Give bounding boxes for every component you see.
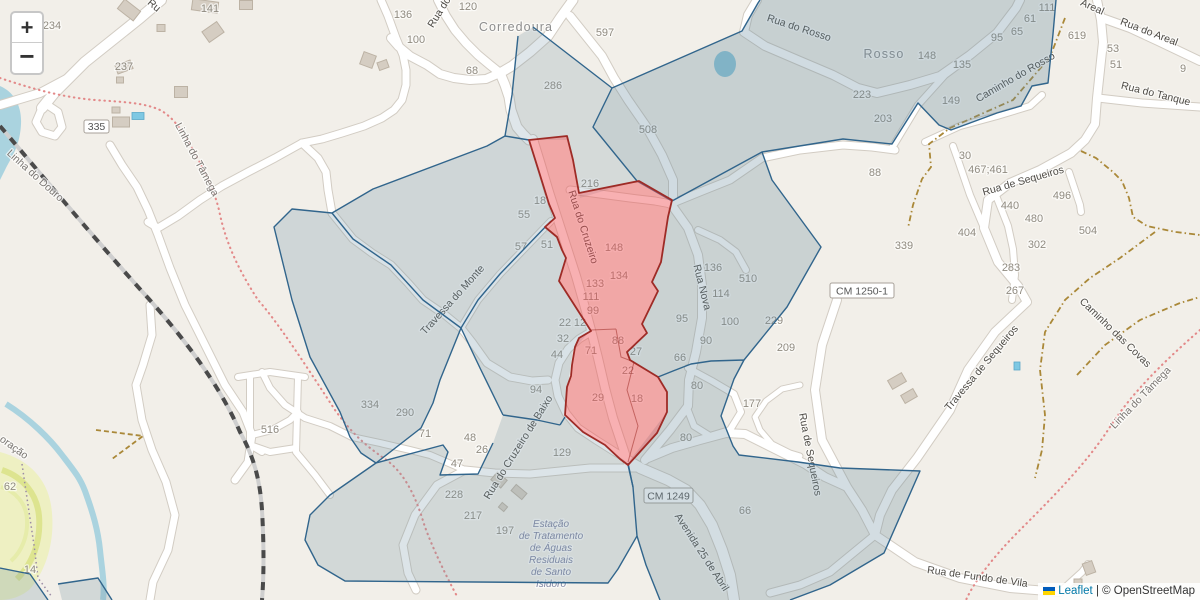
svg-text:209: 209 (777, 342, 795, 354)
svg-text:177: 177 (743, 398, 761, 410)
svg-text:51: 51 (1110, 59, 1122, 71)
svg-text:335: 335 (88, 121, 106, 133)
svg-text:26: 26 (476, 444, 488, 456)
svg-text:504: 504 (1079, 225, 1097, 237)
svg-text:302: 302 (1028, 239, 1046, 251)
svg-text:CM 1250-1: CM 1250-1 (836, 286, 888, 298)
svg-text:267: 267 (1006, 285, 1024, 297)
svg-text:619: 619 (1068, 30, 1086, 42)
svg-text:440: 440 (1001, 200, 1019, 212)
svg-text:234: 234 (43, 20, 61, 32)
svg-text:120: 120 (459, 1, 477, 13)
svg-text:283: 283 (1002, 262, 1020, 274)
svg-text:467;461: 467;461 (968, 164, 1008, 176)
svg-text:339: 339 (895, 240, 913, 252)
svg-text:141: 141 (201, 3, 219, 15)
svg-text:53: 53 (1107, 43, 1119, 55)
svg-text:136: 136 (394, 9, 412, 21)
svg-text:47: 47 (451, 458, 463, 470)
svg-text:597: 597 (596, 27, 614, 39)
svg-text:496: 496 (1053, 190, 1071, 202)
svg-text:30: 30 (959, 150, 971, 162)
svg-text:48: 48 (464, 432, 476, 444)
svg-text:71: 71 (419, 428, 431, 440)
svg-text:62: 62 (4, 481, 16, 493)
svg-text:404: 404 (958, 227, 976, 239)
svg-text:516: 516 (261, 424, 279, 436)
svg-text:480: 480 (1025, 213, 1043, 225)
svg-text:88: 88 (869, 167, 881, 179)
svg-text:Corredoura: Corredoura (479, 20, 553, 34)
svg-text:9: 9 (1180, 63, 1186, 75)
svg-text:68: 68 (466, 65, 478, 77)
svg-text:237: 237 (115, 61, 133, 73)
svg-text:100: 100 (407, 34, 425, 46)
